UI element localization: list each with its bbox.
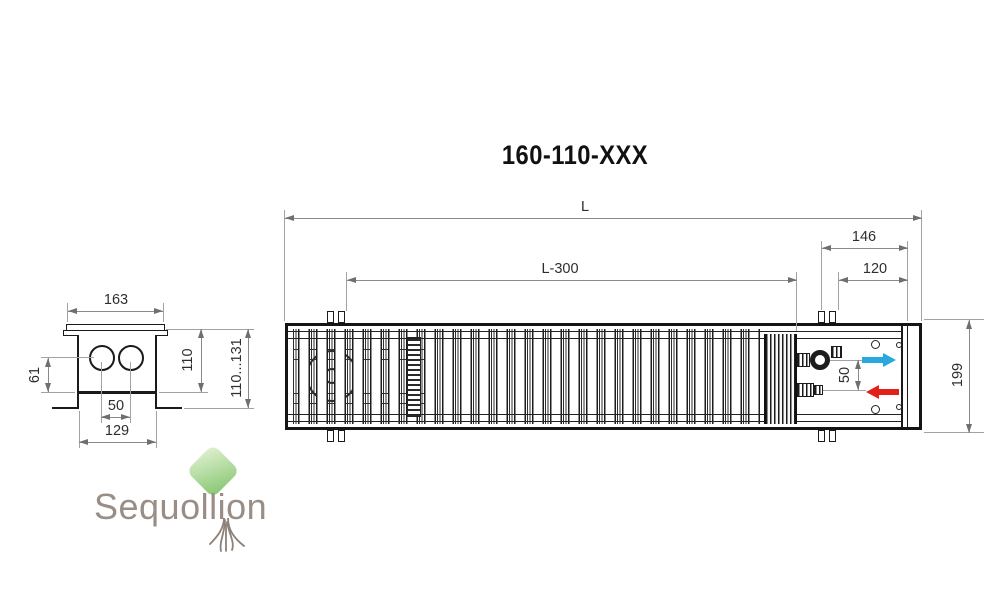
dim-line-50-section <box>101 417 130 418</box>
dim-line-163 <box>68 311 163 312</box>
ext-line <box>159 392 208 393</box>
end-cap-line <box>901 326 903 427</box>
section-pipe-right <box>118 345 144 371</box>
grille-slats <box>293 329 761 424</box>
screw-hole <box>896 342 902 348</box>
dim-line-146 <box>822 248 908 249</box>
screw-hole <box>896 404 902 410</box>
ext-line <box>166 329 254 330</box>
mounting-tab <box>338 430 345 442</box>
dim-label-61: 61 <box>27 357 43 393</box>
dim-line-129 <box>79 442 156 443</box>
section-pipe-left <box>89 345 115 371</box>
rail-line <box>288 421 902 422</box>
ext-line <box>156 411 157 448</box>
flow-return-arrow <box>879 389 899 395</box>
dim-label-120: 120 <box>847 261 903 277</box>
logo-text-part1: Sequo <box>94 486 201 527</box>
flow-supply-arrowhead <box>883 353 896 367</box>
dim-line-L300 <box>347 280 797 281</box>
ext-line <box>184 408 254 409</box>
logo-roots-icon <box>204 518 256 552</box>
dim-label-L: L <box>555 199 615 215</box>
valve-nut <box>831 346 842 358</box>
technical-drawing-page: 160-110-XXX 163 61 110 110...131 <box>0 0 1000 600</box>
screw-hole <box>871 405 880 414</box>
dim-line-110 <box>201 329 202 392</box>
ext-line <box>41 392 75 393</box>
dim-line-61 <box>48 358 49 392</box>
section-foot-left <box>52 407 79 409</box>
return-pipe-fitting <box>797 383 814 397</box>
supply-pipe-thread <box>797 353 810 367</box>
rail-line <box>288 331 902 332</box>
rail-line <box>288 414 902 415</box>
ext-line <box>924 432 984 433</box>
mounting-tab <box>327 430 334 442</box>
dim-label-110-131: 110...131 <box>229 333 245 403</box>
dim-line-L <box>285 218 922 219</box>
dim-label-129: 129 <box>87 423 147 439</box>
model-title: 160-110-XXX <box>465 140 685 171</box>
dim-line-199 <box>969 320 970 433</box>
section-body <box>77 335 157 394</box>
dim-line-120 <box>839 280 908 281</box>
dim-label-163: 163 <box>86 292 146 308</box>
dim-label-50-top-view: 50 <box>837 360 853 390</box>
actuator-ladder <box>407 337 421 417</box>
dim-line-110-131 <box>248 329 249 408</box>
section-foot-right <box>155 407 182 409</box>
rail-line <box>288 338 902 339</box>
dim-line-50-top-view <box>858 360 859 390</box>
ext-line <box>821 241 822 310</box>
dim-label-110: 110 <box>180 340 196 380</box>
flow-supply-arrow <box>862 357 883 363</box>
dim-label-50-section: 50 <box>96 398 136 414</box>
ext-line <box>921 210 922 321</box>
heat-exchanger-fins <box>764 334 797 424</box>
dim-label-L300: L-300 <box>520 261 600 277</box>
screw-hole <box>871 340 880 349</box>
flow-return-arrowhead <box>866 385 879 399</box>
ext-line <box>163 303 164 322</box>
mounting-tab <box>818 311 825 323</box>
mounting-tab <box>818 430 825 442</box>
ext-line <box>924 319 984 320</box>
valve-body <box>810 350 830 370</box>
mounting-tab <box>327 311 334 323</box>
dim-label-146: 146 <box>836 229 892 245</box>
mounting-tab <box>338 311 345 323</box>
mounting-tab <box>829 311 836 323</box>
dim-label-199: 199 <box>950 353 966 397</box>
ext-line <box>284 210 285 321</box>
mounting-tab <box>829 430 836 442</box>
end-cap-line <box>907 326 908 427</box>
return-pipe-plug <box>814 385 823 395</box>
